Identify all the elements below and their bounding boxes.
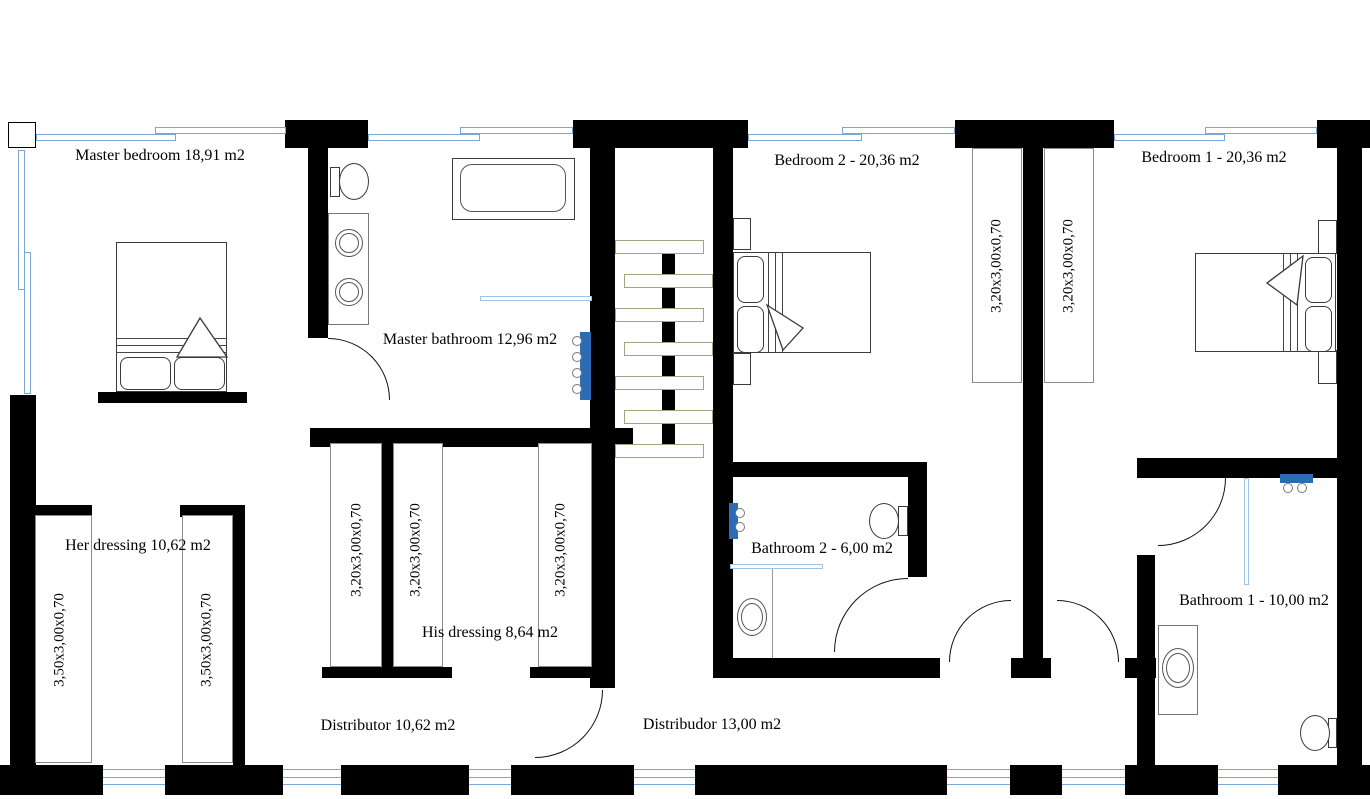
closet-dim-label: 3,50x3,00x0,70 [52, 593, 69, 687]
radiator-knob [735, 508, 745, 518]
room-label-his-dressing: His dressing 8,64 m2 [422, 624, 558, 642]
radiator-knob [1283, 483, 1293, 493]
sink [741, 603, 763, 631]
radiator-knob [735, 522, 745, 532]
floor-plan: Master bedroom 18,91 m2 Master bathroom … [0, 0, 1370, 799]
radiator [1280, 474, 1313, 483]
room-label-master-bedroom: Master bedroom 18,91 m2 [75, 147, 245, 165]
room-label-bathroom2: Bathroom 2 - 6,00 m2 [751, 540, 893, 558]
radiator-knob [572, 384, 582, 394]
room-label-distributor: Distributor 10,62 m2 [321, 717, 456, 735]
shower-screen [1244, 478, 1249, 585]
radiator-knob [1297, 483, 1307, 493]
closet-dim-label: 3,20x3,00x0,70 [1061, 219, 1078, 313]
radiator-knob [572, 368, 582, 378]
room-label-bedroom2: Bedroom 2 - 20,36 m2 [774, 152, 919, 170]
sink [1166, 653, 1190, 683]
radiator-knob [572, 336, 582, 346]
closet-dim-label: 3,20x3,00x0,70 [553, 503, 570, 597]
sink [339, 282, 359, 302]
bathtub [452, 158, 575, 220]
closet-dim-label: 3,20x3,00x0,70 [989, 219, 1006, 313]
room-label-bathroom1: Bathroom 1 - 10,00 m2 [1179, 592, 1329, 610]
closet-dim-label: 3,20x3,00x0,70 [408, 503, 425, 597]
radiator-knob [572, 352, 582, 362]
closet-dim-label: 3,20x3,00x0,70 [349, 503, 366, 597]
room-label-bedroom1: Bedroom 1 - 20,36 m2 [1141, 149, 1286, 167]
sink [339, 233, 359, 253]
closet-dim-label: 3,50x3,00x0,70 [199, 593, 216, 687]
shower-screen [480, 296, 592, 301]
room-label-her-dressing: Her dressing 10,62 m2 [65, 537, 211, 555]
counter-edge [772, 569, 773, 658]
room-label-distribudor: Distribudor 13,00 m2 [643, 716, 781, 734]
room-label-master-bathroom: Master bathroom 12,96 m2 [383, 331, 557, 349]
shower-screen [730, 564, 823, 569]
